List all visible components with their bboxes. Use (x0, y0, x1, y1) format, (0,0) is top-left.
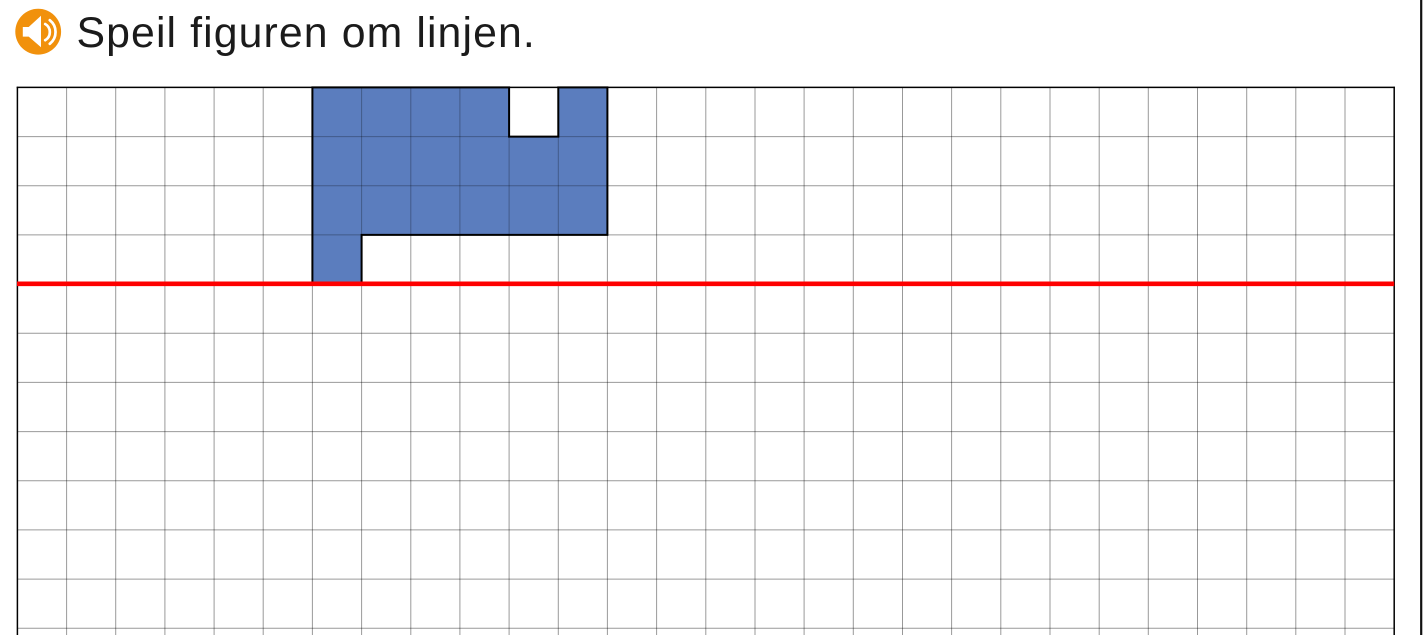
svg-text:Speil figuren om linjen.: Speil figuren om linjen. (77, 9, 536, 57)
